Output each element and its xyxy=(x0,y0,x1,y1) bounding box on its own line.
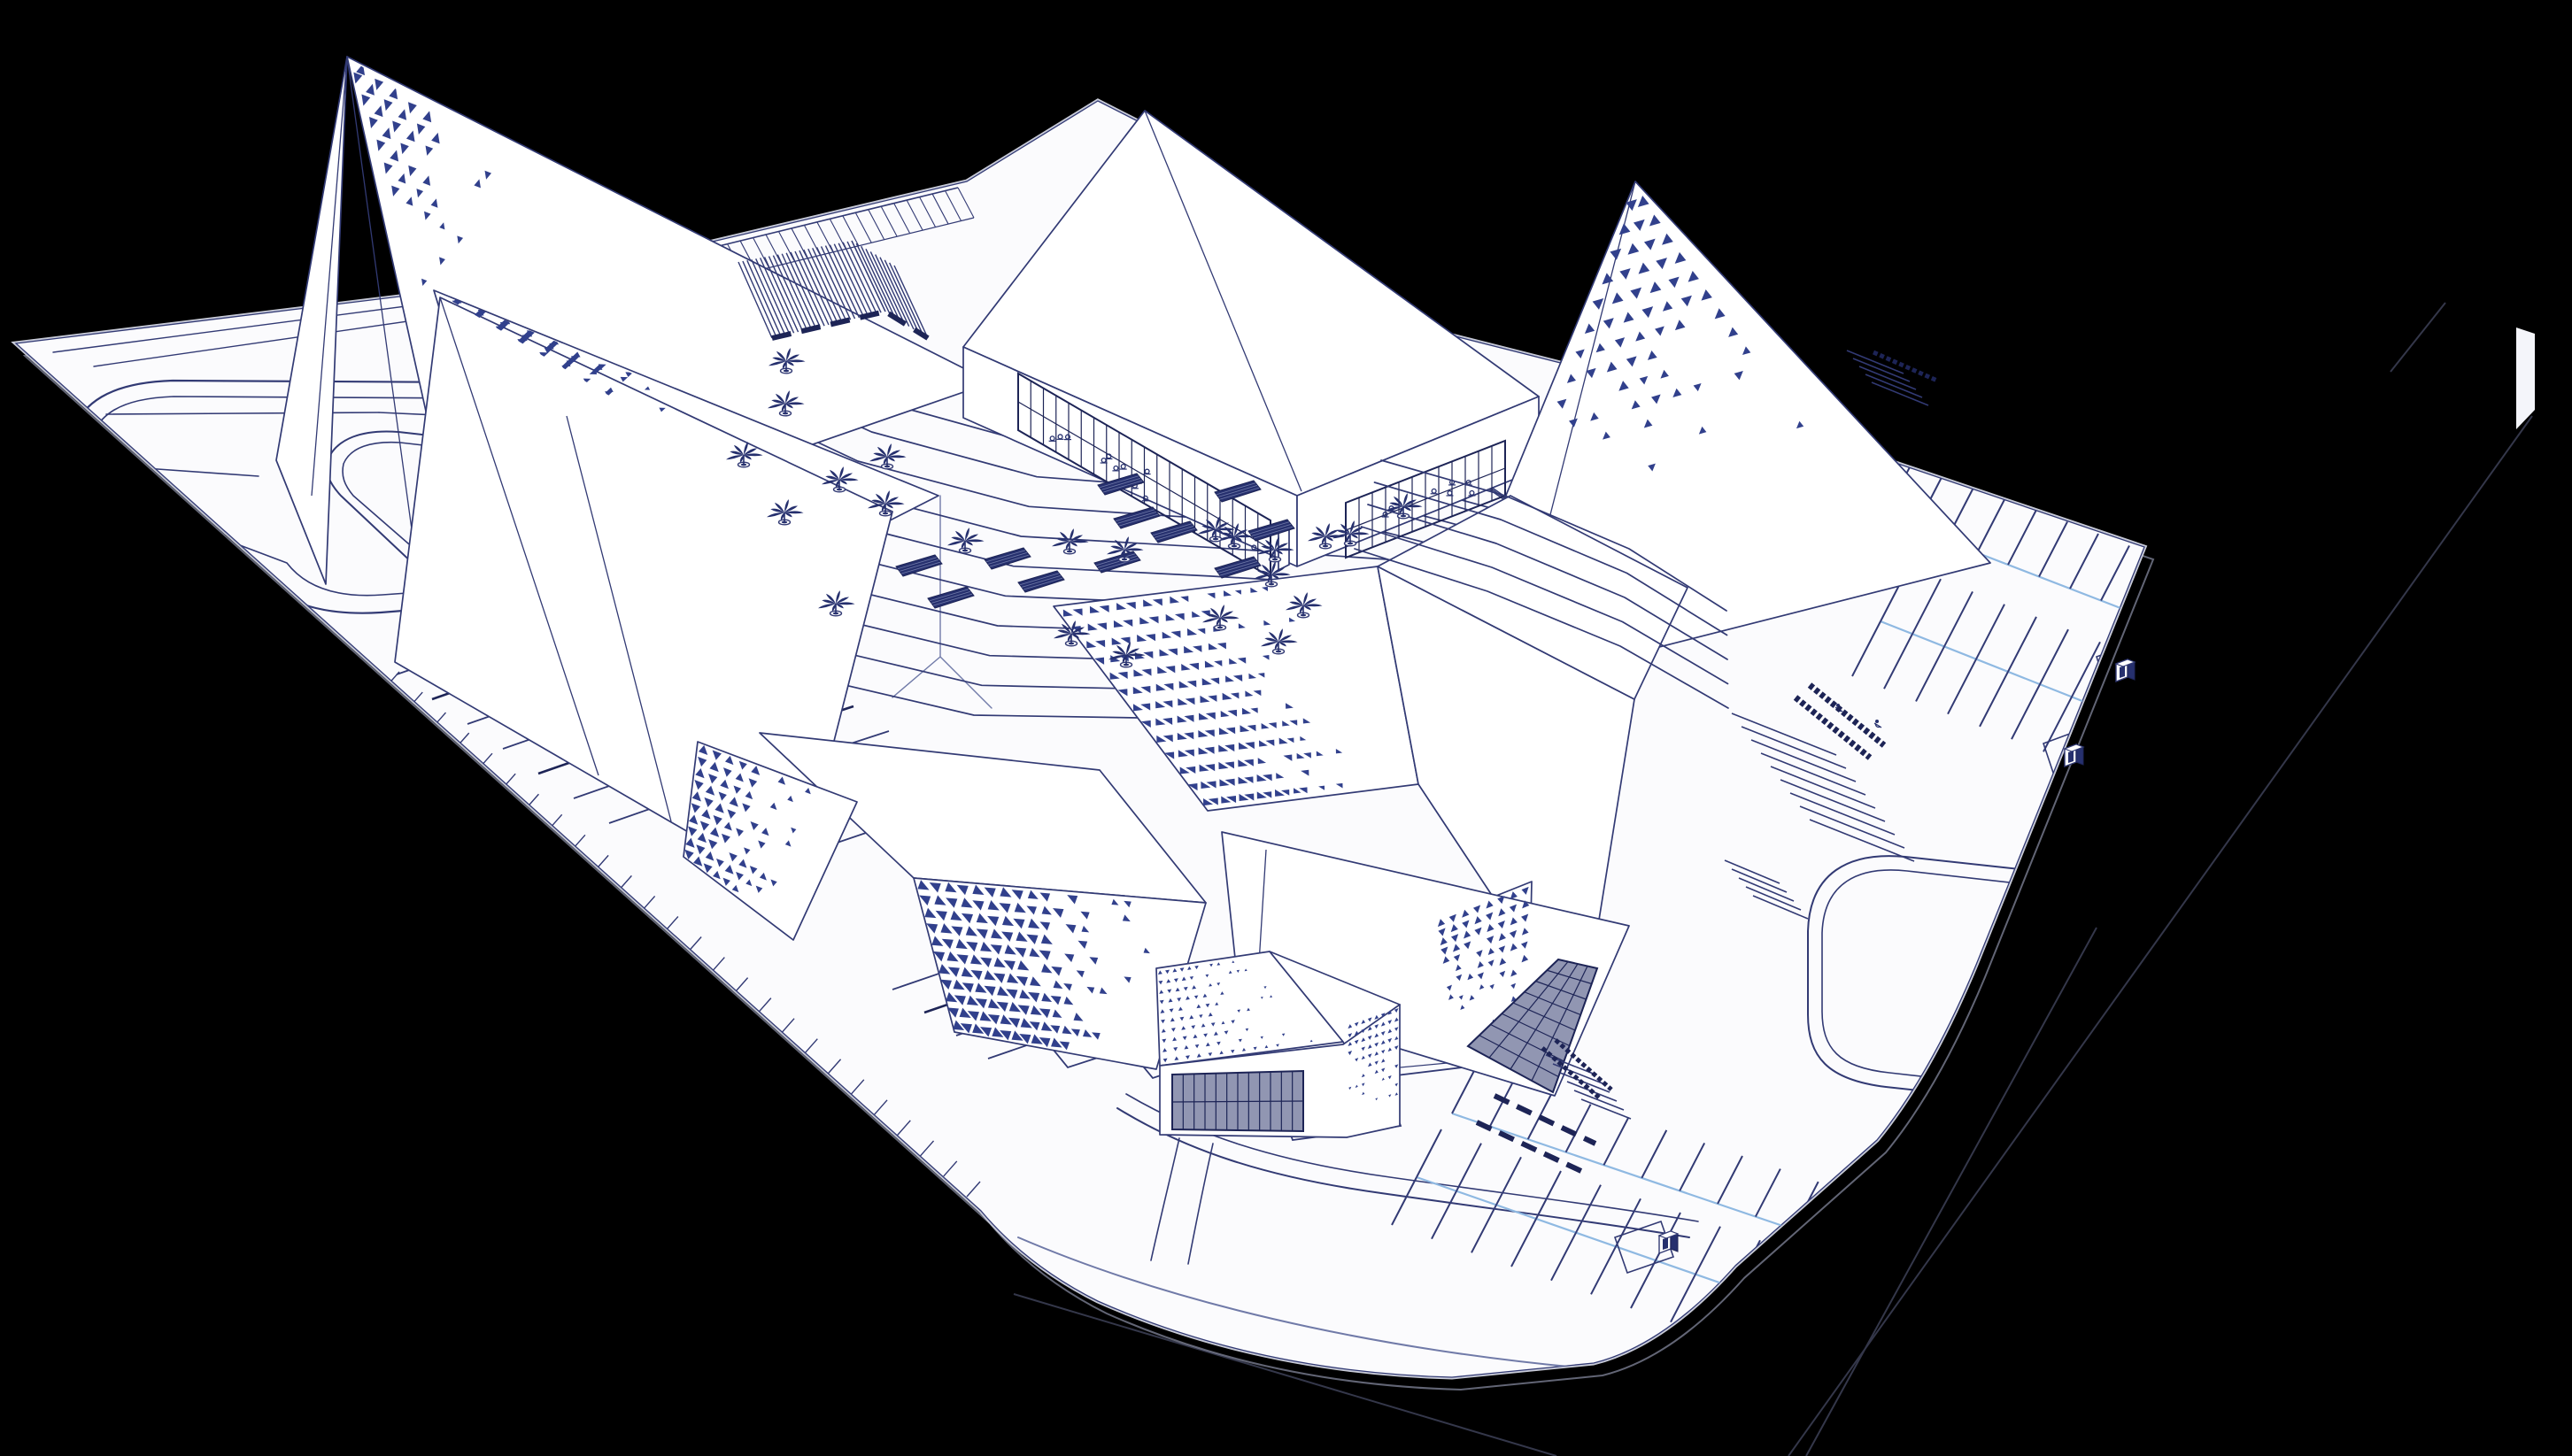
ticket-kiosk xyxy=(2116,659,2135,682)
planter-core xyxy=(1122,559,1127,561)
planter-core xyxy=(782,521,787,524)
planter-core xyxy=(1232,545,1237,548)
planter-core xyxy=(884,466,890,468)
planter-core xyxy=(1269,583,1274,586)
planter-core xyxy=(783,412,788,415)
planter-core xyxy=(1067,551,1072,553)
planter-core xyxy=(962,550,968,552)
kiosk-door xyxy=(1663,1237,1668,1250)
screenshot-stage: Axonometric architectural site model ren… xyxy=(0,0,2572,1456)
site-rendering: Axonometric architectural site model ren… xyxy=(0,0,2572,1456)
planter-core xyxy=(1323,545,1328,548)
planter-core xyxy=(1272,559,1278,561)
kiosk-door xyxy=(2120,666,2125,678)
planter-core xyxy=(837,489,842,491)
planter-core xyxy=(1301,614,1306,617)
ticket-kiosk xyxy=(1659,1231,1678,1253)
planter-core xyxy=(1213,538,1218,541)
planter-core xyxy=(1217,627,1223,629)
planter-core xyxy=(833,612,838,615)
planter-core xyxy=(1124,664,1129,666)
planter-core xyxy=(784,370,789,373)
planter-core xyxy=(883,512,888,515)
ticket-kiosk xyxy=(2065,744,2083,767)
planter-core xyxy=(1069,643,1074,645)
kiosk-door xyxy=(2068,751,2074,763)
planter-core xyxy=(1401,515,1406,518)
planter-core xyxy=(1348,543,1353,545)
planter-core xyxy=(1276,651,1281,653)
pavilion-glass xyxy=(1172,1071,1303,1131)
planter-core xyxy=(741,464,746,466)
